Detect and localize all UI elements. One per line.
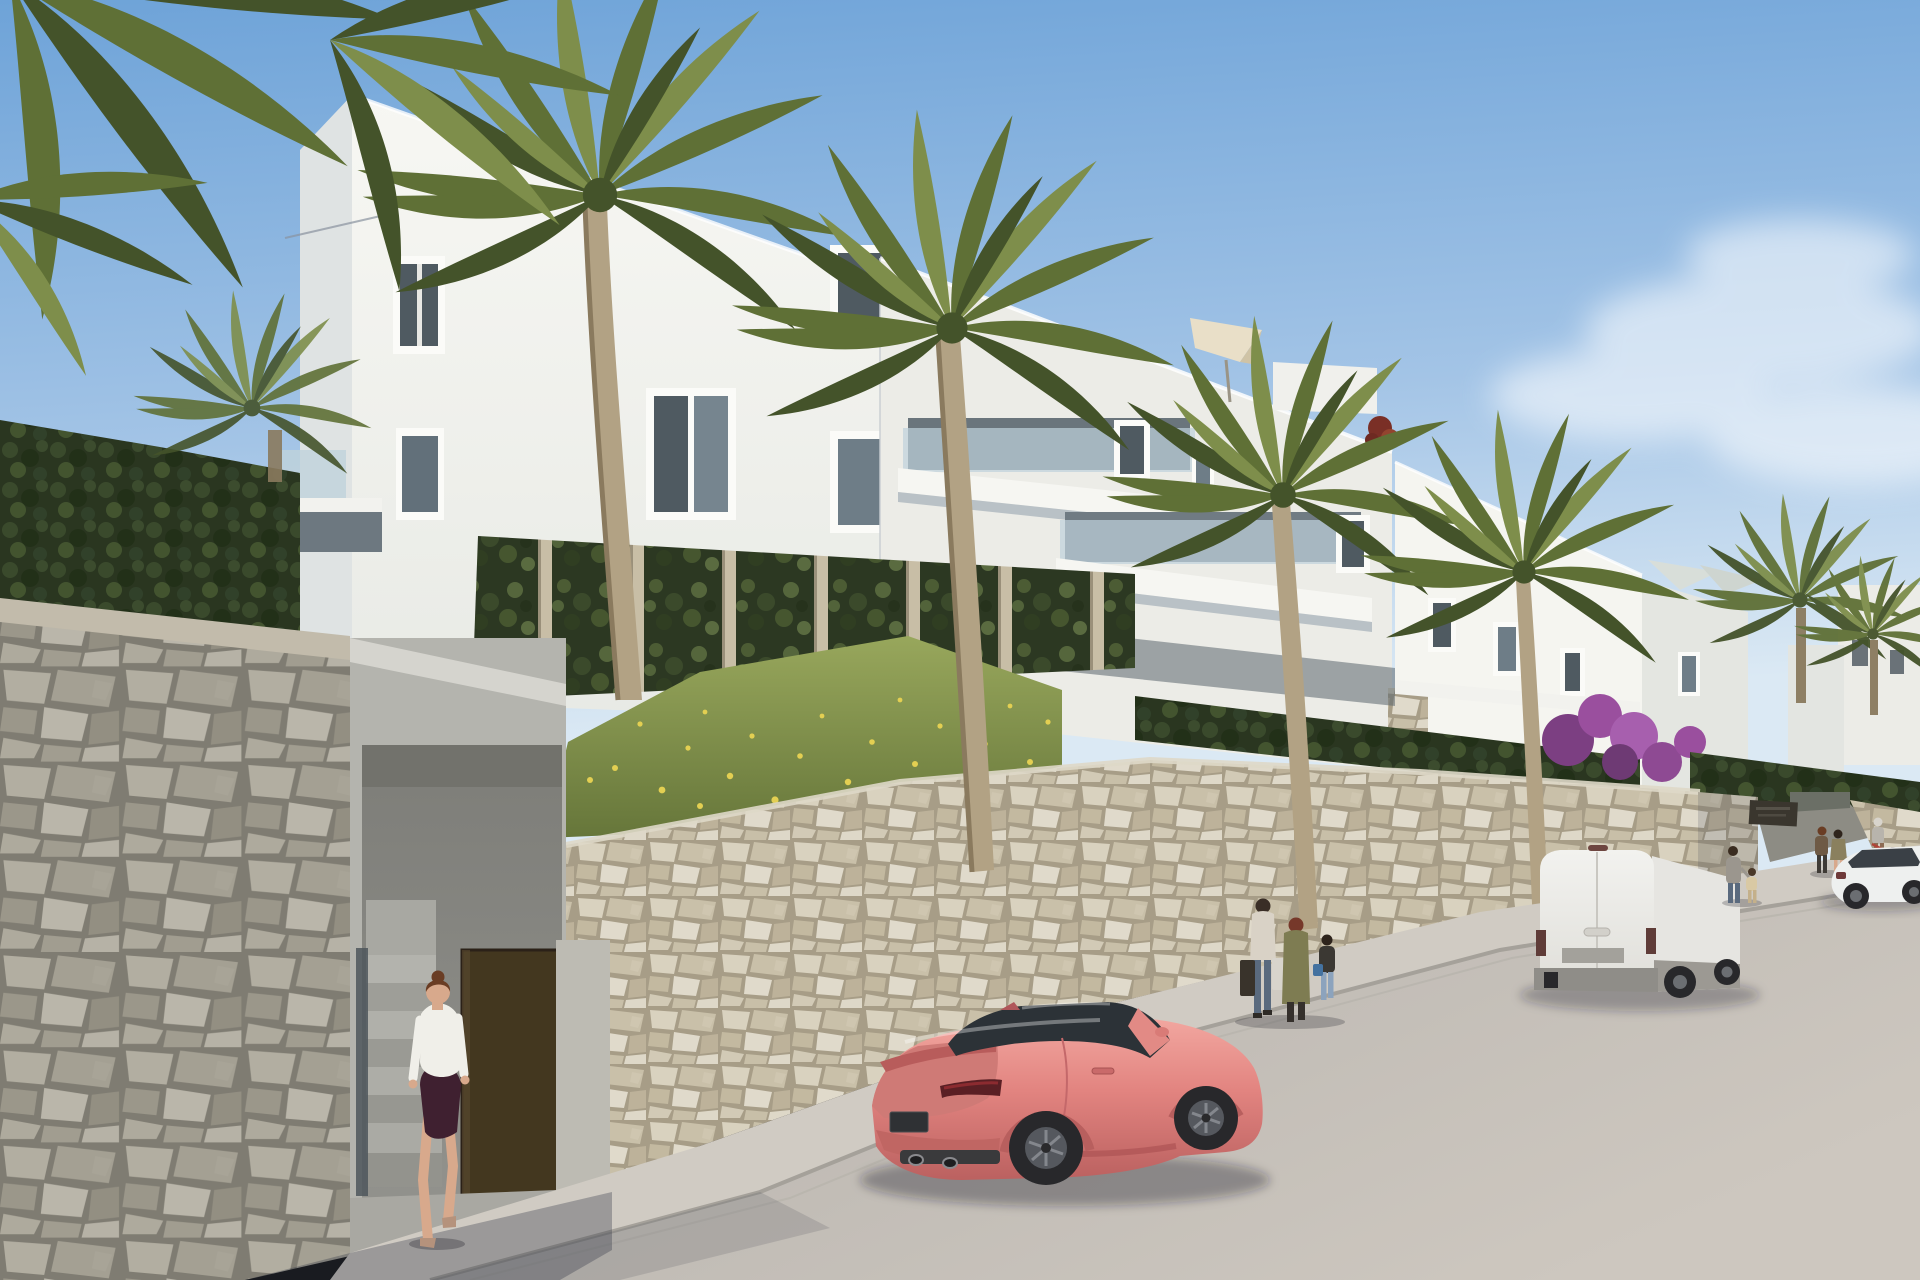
license-plate: [890, 1112, 928, 1132]
side-mirror: [1155, 1027, 1169, 1037]
roof-marker: [1588, 845, 1608, 851]
rendered-street-scene: [0, 0, 1920, 1280]
shopping-bag: [1240, 960, 1255, 996]
entrance-door: [462, 950, 558, 1198]
blue-bag: [1313, 964, 1323, 976]
door-handle: [1092, 1068, 1114, 1074]
entrance-plaque: [1749, 800, 1798, 826]
foreground-stone-retaining-wall: [0, 598, 350, 1280]
glass-balustrade: [356, 948, 368, 1196]
